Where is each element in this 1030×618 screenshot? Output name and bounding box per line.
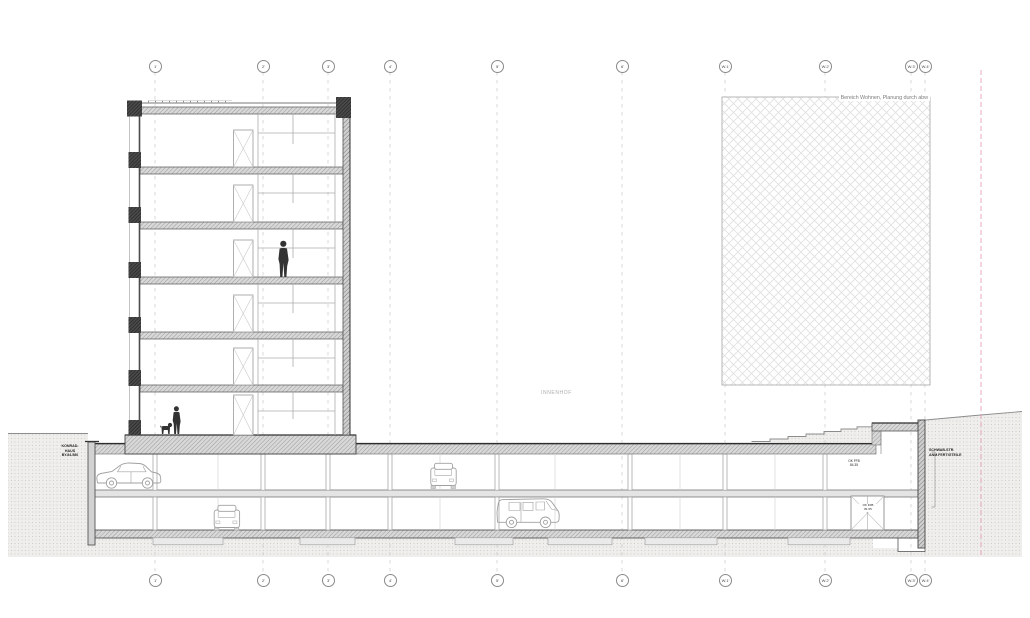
- area-note-label: Bereich Wohnen, Planung durch abw: [760, 95, 930, 101]
- grid-marker-3': 3': [322, 60, 335, 73]
- car-front-ug1-icon: [431, 463, 456, 488]
- courtyard-label: INNENHOF: [541, 390, 572, 396]
- grid-marker-5': 5': [491, 60, 504, 73]
- grid-marker-1': 1': [149, 60, 162, 73]
- architectural-section-drawing: Bereich Wohnen, Planung durch abw INNENH…: [0, 0, 1030, 618]
- grid-marker-W.3': W.3': [905, 574, 918, 587]
- grid-marker-W.2': W.2': [819, 60, 832, 73]
- right-street-label: SCHWAB-STR. ANM.FERTIGTEILE: [929, 448, 971, 457]
- left-building-label: KONRAD- HAUS BY.84.580: [48, 444, 92, 458]
- grid-marker-W.4': W.4': [919, 60, 932, 73]
- grid-marker-2': 2': [257, 60, 270, 73]
- ug2-door-label: OK FFB 81.55: [853, 504, 883, 512]
- tower-right-wall: [343, 103, 350, 435]
- grid-marker-4': 4': [384, 60, 397, 73]
- future-building-hatch-area: [722, 97, 930, 385]
- car-front-ug2-icon: [214, 505, 239, 530]
- grid-marker-W.1': W.1': [719, 574, 732, 587]
- grid-marker-2': 2': [257, 574, 270, 587]
- grid-marker-W.3': W.3': [905, 60, 918, 73]
- section-linework: [0, 0, 1030, 618]
- grid-marker-1': 1': [149, 574, 162, 587]
- grid-marker-6': 6': [616, 574, 629, 587]
- garage-double-door: [851, 496, 884, 530]
- grid-marker-3': 3': [322, 574, 335, 587]
- grid-marker-6': 6': [616, 60, 629, 73]
- ug1-level-label: OK FFB 84.35: [840, 459, 868, 467]
- grid-marker-4': 4': [384, 574, 397, 587]
- grid-marker-W.2': W.2': [819, 574, 832, 587]
- grid-marker-W.1': W.1': [719, 60, 732, 73]
- garage-right-wall: [918, 420, 925, 548]
- grid-marker-W.4': W.4': [919, 574, 932, 587]
- grid-marker-5': 5': [491, 574, 504, 587]
